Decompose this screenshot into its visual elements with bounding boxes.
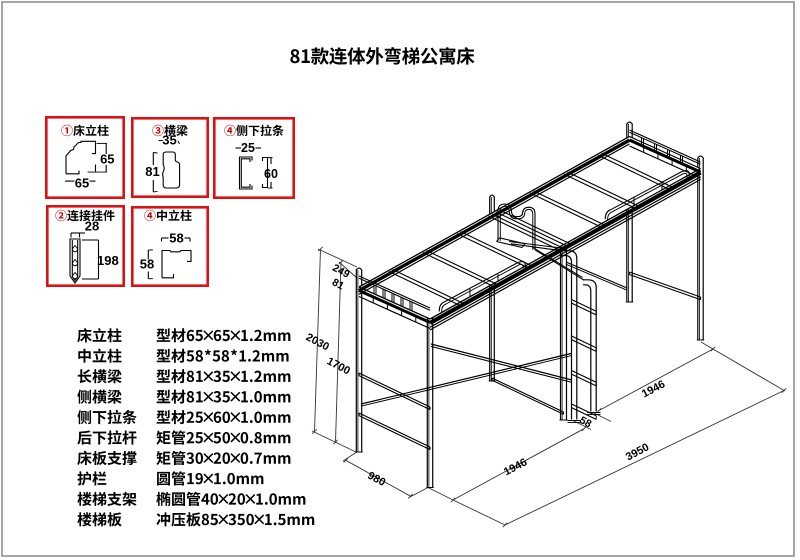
svg-text:60: 60 (264, 167, 278, 181)
svg-text:1700: 1700 (325, 355, 352, 377)
svg-text:249: 249 (330, 262, 351, 281)
svg-text:65: 65 (75, 176, 89, 191)
svg-text:35: 35 (162, 133, 176, 148)
svg-text:81: 81 (145, 164, 159, 179)
svg-text:1946: 1946 (640, 378, 667, 400)
svg-text:58: 58 (140, 257, 154, 272)
svg-text:198: 198 (97, 253, 119, 268)
svg-text:58: 58 (169, 231, 183, 246)
svg-text:1946: 1946 (502, 456, 529, 478)
svg-text:980: 980 (365, 470, 387, 489)
svg-text:25: 25 (241, 141, 255, 155)
svg-text:28: 28 (85, 219, 99, 234)
svg-text:65: 65 (100, 152, 114, 167)
svg-text:3950: 3950 (624, 441, 651, 463)
